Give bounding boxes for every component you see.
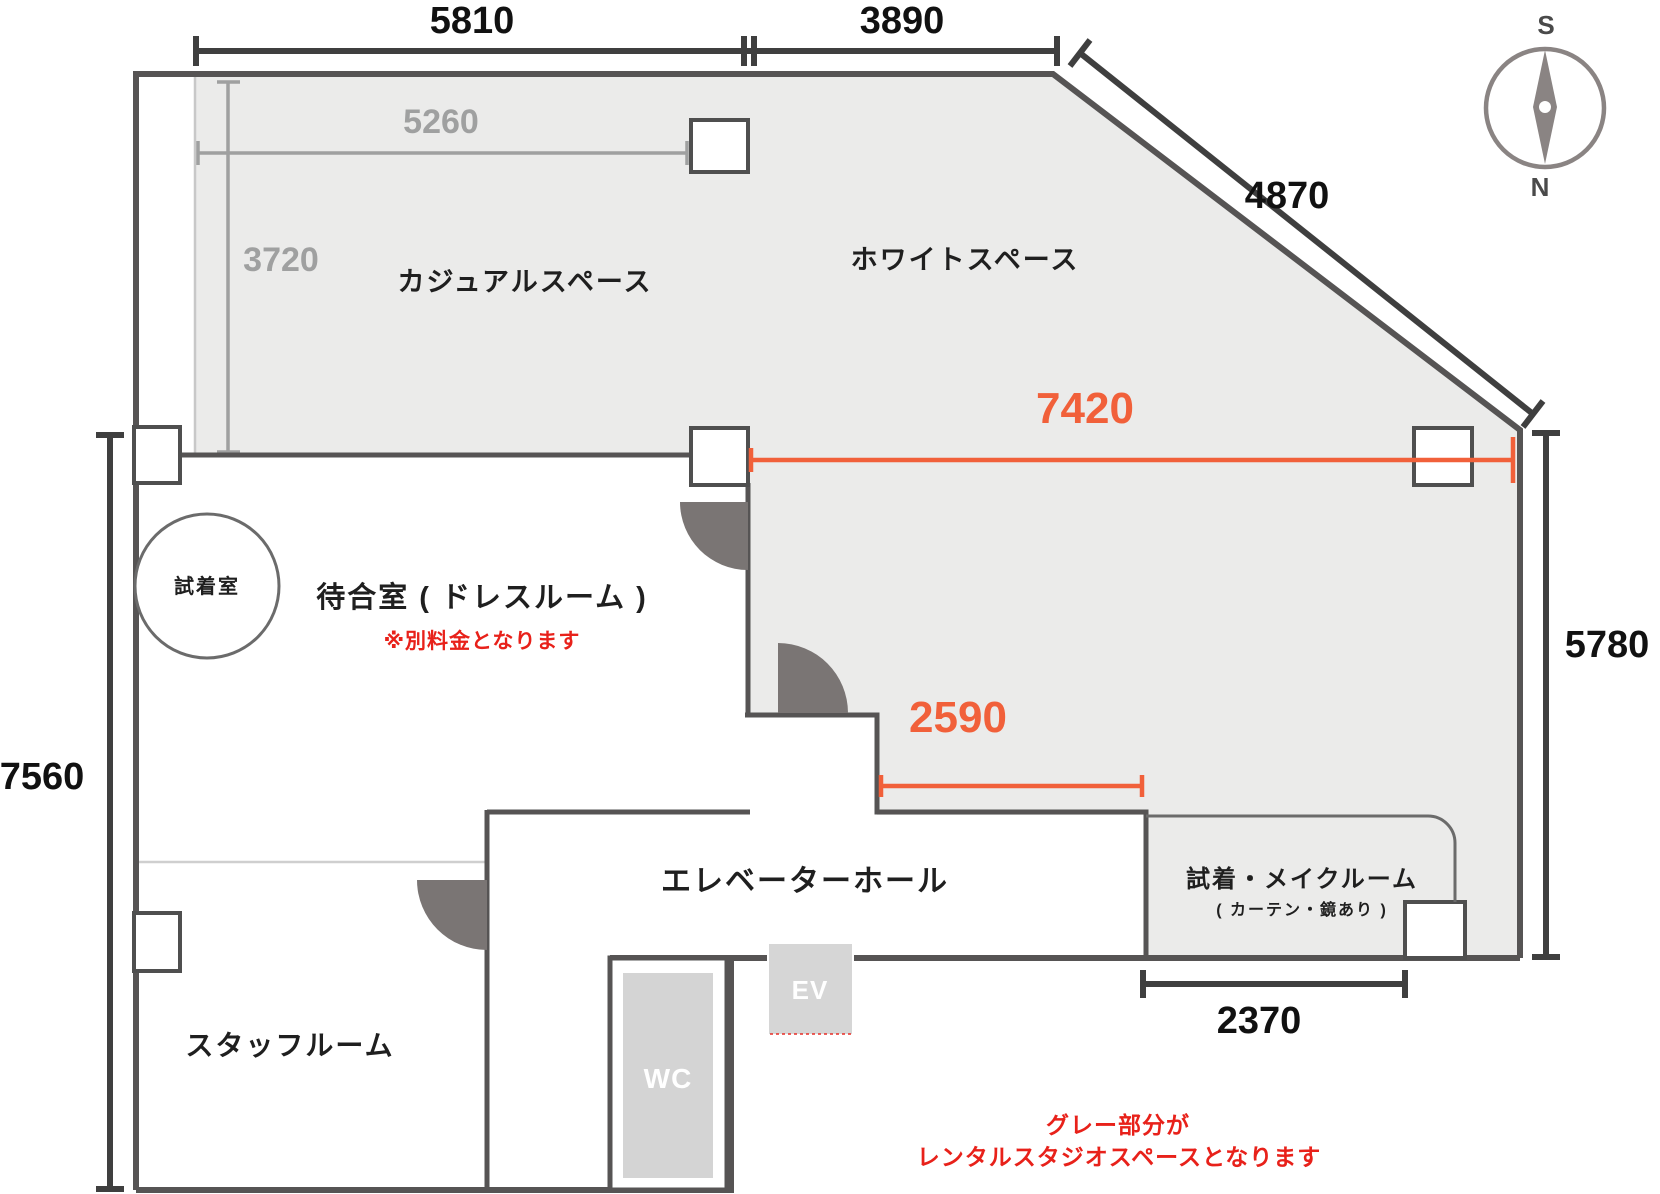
pillar-waiting-top — [691, 428, 748, 485]
label-waiting-room-fee: ※別料金となります — [384, 629, 581, 653]
label-makeup-room: 試着・メイクルーム — [1186, 865, 1418, 893]
dimension-5780 — [1532, 433, 1560, 957]
door-swing-waiting — [680, 502, 748, 570]
dim-label-5260: 5260 — [403, 103, 479, 141]
label-white-space: ホワイトスペース — [851, 245, 1080, 275]
label-staff-room: スタッフルーム — [185, 1030, 394, 1061]
label-elevator-hall: エレベーターホール — [661, 865, 949, 898]
door-swing-staffroom — [417, 880, 487, 950]
compass-hub — [1539, 101, 1551, 113]
dim-label-2590: 2590 — [909, 693, 1007, 742]
label-fitting-room: 試着室 — [174, 574, 240, 598]
label-casual-space: カジュアルスペース — [397, 267, 652, 297]
dim-label-7560: 7560 — [0, 756, 84, 798]
dim-label-7420: 7420 — [1036, 384, 1134, 433]
dim-label-4870: 4870 — [1245, 175, 1330, 217]
legend-line2: レンタルスタジオスペースとなります — [917, 1144, 1322, 1170]
dim-label-2370: 2370 — [1217, 1000, 1302, 1042]
pillar-right — [1414, 428, 1472, 485]
pillar-top — [691, 120, 748, 172]
dimension-2370 — [1143, 970, 1405, 998]
dim-label-5780: 5780 — [1565, 624, 1650, 666]
compass-north-label: N — [1531, 172, 1550, 202]
pillar-makeup — [1405, 902, 1465, 958]
compass: S N — [1486, 10, 1604, 202]
floor-plan: S N 5810 3890 4870 7560 5780 2370 5260 3… — [0, 0, 1660, 1194]
pillar-left-upper — [134, 427, 180, 483]
dim-label-5810: 5810 — [430, 0, 515, 42]
dim-label-3720: 3720 — [243, 241, 319, 279]
legend-line1: グレー部分が — [1046, 1112, 1190, 1138]
dimension-7560 — [96, 435, 124, 1189]
label-makeup-room-sub: ( カーテン・鏡あり ) — [1216, 900, 1388, 919]
label-ev: EV — [792, 975, 829, 1005]
pillar-left-lower — [134, 913, 180, 971]
compass-south-label: S — [1537, 10, 1554, 40]
label-wc: WC — [644, 1063, 693, 1094]
floor-plan-canvas: S N 5810 3890 4870 7560 5780 2370 5260 3… — [0, 0, 1660, 1194]
dim-label-3890: 3890 — [860, 0, 945, 42]
label-waiting-room: 待合室 ( ドレスルーム ) — [316, 580, 648, 614]
